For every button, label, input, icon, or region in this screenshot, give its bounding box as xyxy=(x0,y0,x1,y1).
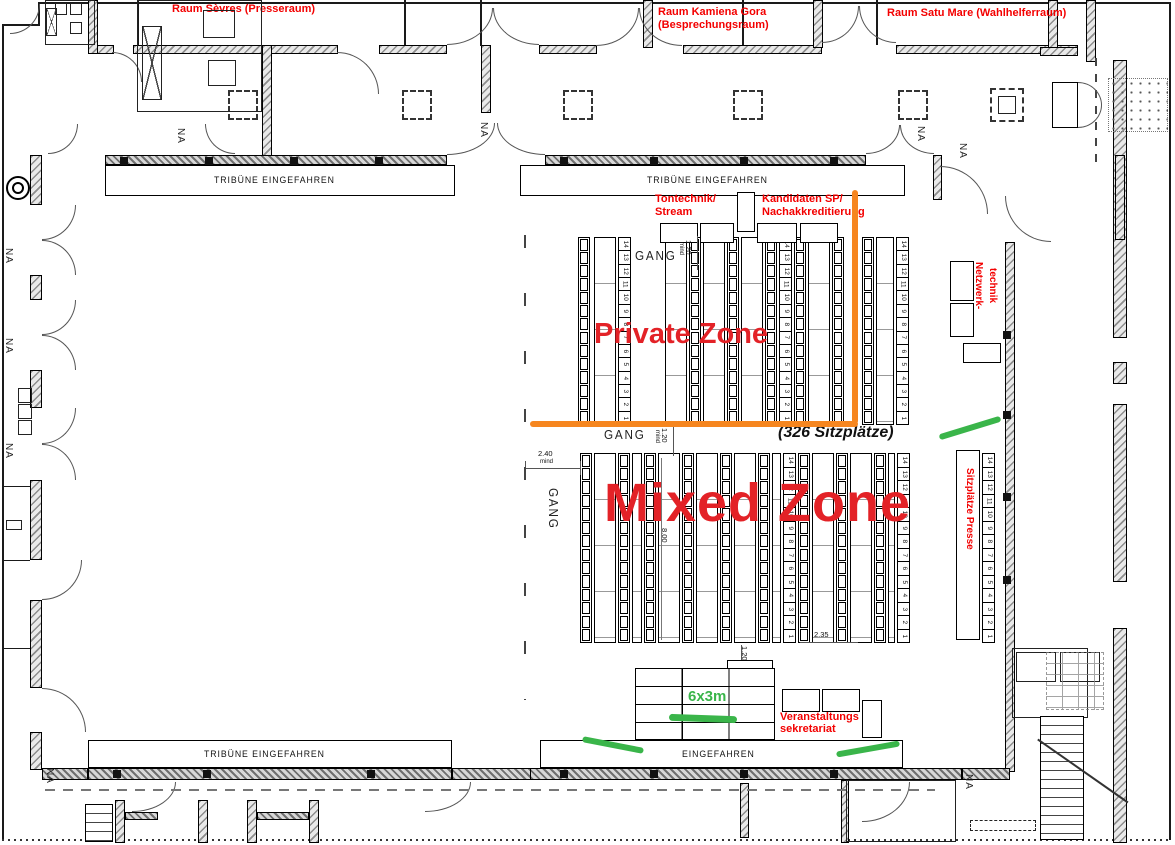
seat xyxy=(620,589,629,601)
seat xyxy=(729,265,738,277)
seat xyxy=(684,589,693,601)
seat-number-text: 1 xyxy=(899,416,906,420)
seat-number-text: 10 xyxy=(985,511,992,518)
seat-number-text: 9 xyxy=(621,309,628,313)
seat xyxy=(684,575,693,587)
door-arc xyxy=(42,688,86,732)
seat-number-text: 3 xyxy=(985,607,992,611)
seat-number-text: 10 xyxy=(899,294,906,301)
na-label: NA xyxy=(44,768,56,784)
table-netzwerk xyxy=(950,303,974,337)
seat-number-text: 3 xyxy=(621,389,628,393)
seat-number: 13 xyxy=(780,250,791,263)
seat xyxy=(684,549,693,561)
seat-number-text: 3 xyxy=(899,389,906,393)
seat-number-text: 2 xyxy=(899,403,906,407)
seat xyxy=(796,278,805,290)
seat xyxy=(767,385,776,397)
tribune-bottom-left: TRIBÜNE EINGEFAHREN xyxy=(88,740,452,768)
seat xyxy=(729,358,738,370)
wall-marker xyxy=(367,770,375,778)
seat-column xyxy=(578,237,590,425)
seat xyxy=(580,265,589,277)
fixture xyxy=(70,3,82,15)
seat-number-text: 6 xyxy=(985,566,992,570)
dim-tick xyxy=(697,236,698,270)
seat-number: 1 xyxy=(898,629,909,643)
wall-segment xyxy=(115,800,125,843)
rail-segment xyxy=(88,768,452,780)
seat xyxy=(729,278,738,290)
seat xyxy=(864,305,873,317)
seat xyxy=(722,549,731,561)
seat xyxy=(646,589,655,601)
seat-number: 1 xyxy=(784,629,795,643)
seat xyxy=(834,358,843,370)
dim-120-stage: 1.20 xyxy=(739,646,748,661)
seat-number-text: 6 xyxy=(782,349,789,353)
door-arc xyxy=(205,124,235,154)
gang-label-mid: GANG xyxy=(604,428,646,443)
seat xyxy=(722,589,731,601)
seat xyxy=(800,535,809,547)
seat xyxy=(582,602,591,614)
seat xyxy=(646,629,655,641)
seat-number: 2 xyxy=(784,615,795,629)
seat xyxy=(582,562,591,574)
seat xyxy=(796,292,805,304)
seat-number-text: 3 xyxy=(782,389,789,393)
na-label: NA xyxy=(963,774,975,790)
seat-number: 4 xyxy=(784,588,795,602)
seat xyxy=(580,292,589,304)
seat xyxy=(864,292,873,304)
stair-flight xyxy=(1040,716,1084,840)
seat-number-text: 11 xyxy=(621,281,628,288)
seat xyxy=(580,278,589,290)
seat xyxy=(876,629,885,641)
door-arc xyxy=(42,408,76,444)
seat-number-text: 4 xyxy=(786,593,793,597)
table-veranstaltung xyxy=(782,689,820,712)
seat-number: 5 xyxy=(983,575,994,589)
seat-number: 2 xyxy=(983,615,994,629)
seat xyxy=(684,629,693,641)
seat xyxy=(646,602,655,614)
seat xyxy=(767,292,776,304)
wall-segment xyxy=(1113,362,1127,384)
seat xyxy=(838,575,847,587)
seat-number-text: 2 xyxy=(786,620,793,624)
seat xyxy=(864,332,873,344)
door-arc xyxy=(42,335,76,370)
seat xyxy=(800,589,809,601)
seat xyxy=(834,398,843,410)
seat-number-text: 1 xyxy=(782,416,789,420)
door-arc xyxy=(10,4,40,34)
seat-number-text: 4 xyxy=(985,593,992,597)
seat xyxy=(800,629,809,641)
rail-segment xyxy=(545,155,866,165)
wall-marker xyxy=(740,770,748,778)
seat xyxy=(864,371,873,383)
door-arc xyxy=(493,8,539,45)
room-label-satu-mare: Raum Satu Mare (Wahlhelferraum) xyxy=(887,7,1066,20)
door-arc xyxy=(42,240,76,275)
wall-segment xyxy=(481,45,491,113)
seat-number-text: 11 xyxy=(899,281,906,288)
seat-number-text: 8 xyxy=(899,323,906,327)
seat xyxy=(729,252,738,264)
wall-segment xyxy=(30,600,42,688)
seat xyxy=(876,602,885,614)
seat xyxy=(760,629,769,641)
seat xyxy=(767,252,776,264)
seat xyxy=(834,252,843,264)
seat xyxy=(864,318,873,330)
seat xyxy=(582,495,591,507)
seat-number: 1 xyxy=(983,629,994,643)
seat xyxy=(760,562,769,574)
door-arc xyxy=(1005,196,1051,242)
seat xyxy=(582,522,591,534)
seat xyxy=(796,332,805,344)
seat-number: 3 xyxy=(780,384,791,397)
seat-number: 3 xyxy=(619,384,630,397)
seat xyxy=(876,575,885,587)
seat xyxy=(760,455,769,467)
door-arc xyxy=(42,560,82,600)
table-column xyxy=(808,237,830,425)
seat xyxy=(834,345,843,357)
seat-number: 6 xyxy=(780,344,791,357)
seat-number-text: 12 xyxy=(985,484,992,491)
table-kandidaten xyxy=(800,223,838,243)
tribune-label: TRIBÜNE EINGEFAHREN xyxy=(214,175,335,186)
seat xyxy=(767,278,776,290)
seat xyxy=(796,398,805,410)
seat-number: 4 xyxy=(983,588,994,602)
door-arc xyxy=(447,8,493,45)
seat xyxy=(876,549,885,561)
wall-segment xyxy=(1040,47,1078,56)
seat-number-text: 9 xyxy=(782,309,789,313)
podium xyxy=(737,192,755,232)
seat xyxy=(722,455,731,467)
seat xyxy=(582,508,591,520)
seat xyxy=(646,535,655,547)
seat-number: 8 xyxy=(898,534,909,548)
seat xyxy=(684,455,693,467)
seat xyxy=(582,481,591,493)
seat-number: 7 xyxy=(897,331,908,344)
seat xyxy=(760,602,769,614)
seat-number: 7 xyxy=(898,548,909,562)
seat xyxy=(876,455,885,467)
seat xyxy=(800,455,809,467)
table-veranstaltung xyxy=(822,689,860,712)
seat xyxy=(864,398,873,410)
seat-number-text: 4 xyxy=(782,376,789,380)
entrance-door-arc xyxy=(1078,82,1102,105)
seat-number: 8 xyxy=(897,317,908,330)
seat xyxy=(767,358,776,370)
seat-number: 7 xyxy=(983,548,994,562)
seat-number: 7 xyxy=(784,548,795,562)
seat xyxy=(691,305,700,317)
seat-number: 8 xyxy=(784,534,795,548)
seat xyxy=(580,385,589,397)
seat xyxy=(834,265,843,277)
kandidaten-label-2: Nachakkreditierung xyxy=(762,206,865,219)
wall-segment xyxy=(1086,0,1096,62)
entrance-door-leaf xyxy=(1052,82,1078,128)
seat xyxy=(834,278,843,290)
seat xyxy=(864,252,873,264)
seat-number-text: 9 xyxy=(985,526,992,530)
na-label: NA xyxy=(478,122,490,138)
rail-segment xyxy=(452,768,532,780)
seat xyxy=(767,305,776,317)
seat-number-text: 2 xyxy=(900,620,907,624)
seat-number: 12 xyxy=(983,480,994,494)
seat xyxy=(722,616,731,628)
center-dashed-line xyxy=(524,235,526,700)
seat xyxy=(582,468,591,480)
radiator xyxy=(18,404,32,419)
boundary-left xyxy=(2,24,4,840)
seat-number-text: 5 xyxy=(621,363,628,367)
seat xyxy=(838,602,847,614)
seat-number-text: 5 xyxy=(782,363,789,367)
seat-number-text: 1 xyxy=(900,634,907,638)
seat-number-column: 1413121110987654321 xyxy=(982,453,995,643)
rail-segment xyxy=(257,812,309,820)
private-zone-line-vertical xyxy=(852,190,858,424)
wall-marker xyxy=(375,157,383,165)
seat xyxy=(580,252,589,264)
seat xyxy=(580,371,589,383)
dim-tick xyxy=(673,424,674,456)
seat xyxy=(760,616,769,628)
presse-label: Sitzplätze Presse xyxy=(964,468,976,550)
tribune-label: TRIBÜNE EINGEFAHREN xyxy=(647,175,768,186)
seat xyxy=(760,575,769,587)
dim-120-mid: 1.20 xyxy=(659,428,668,443)
door-arc xyxy=(42,444,76,480)
room-label-kamiena-1: Raum Kamiena Gora xyxy=(658,6,766,19)
seat-number-text: 3 xyxy=(900,607,907,611)
seat-number-text: 10 xyxy=(621,294,628,301)
seat xyxy=(620,575,629,587)
seat-number: 12 xyxy=(780,264,791,277)
gang-label-top: GANG xyxy=(635,249,677,264)
column-dashed xyxy=(733,90,763,120)
seat xyxy=(796,371,805,383)
bottom-room xyxy=(846,780,956,842)
seat-number: 10 xyxy=(780,290,791,303)
door-arc xyxy=(48,124,78,154)
seat-number-text: 4 xyxy=(621,376,628,380)
wall-segment xyxy=(30,732,42,770)
seat-number-text: 10 xyxy=(782,294,789,301)
seat-number-text: 12 xyxy=(621,267,628,274)
wall-marker xyxy=(205,157,213,165)
table-column xyxy=(876,237,894,425)
mixed-zone-label: Mixed Zone xyxy=(604,472,911,534)
seat xyxy=(722,535,731,547)
seat-number-text: 5 xyxy=(786,580,793,584)
seat xyxy=(800,549,809,561)
seat xyxy=(760,589,769,601)
seat-number: 12 xyxy=(619,264,630,277)
seat-number: 5 xyxy=(897,357,908,370)
seat xyxy=(864,239,873,251)
wall-segment xyxy=(30,275,42,300)
mini-stair xyxy=(85,804,113,842)
seat xyxy=(691,292,700,304)
tontechnik-label-1: Tontechnik/ xyxy=(655,193,716,206)
seat xyxy=(838,455,847,467)
seat-number: 4 xyxy=(897,371,908,384)
wall-segment xyxy=(247,800,257,843)
entrance-mat xyxy=(1108,78,1168,132)
seat xyxy=(580,398,589,410)
dim-240: 2.40 xyxy=(538,450,553,459)
door-arc xyxy=(940,166,988,214)
seat xyxy=(691,385,700,397)
seat-column xyxy=(862,237,874,425)
dim-mind-top: mind xyxy=(677,242,684,255)
seat xyxy=(767,371,776,383)
column-dashed xyxy=(402,90,432,120)
private-zone-line-horizontal xyxy=(530,421,858,427)
seat-number: 1 xyxy=(897,411,908,424)
seat-number-text: 2 xyxy=(621,403,628,407)
na-label: NA xyxy=(915,126,927,142)
seat xyxy=(620,602,629,614)
seat-number-text: 13 xyxy=(782,254,789,261)
rail-segment xyxy=(125,812,158,820)
seat-number-text: 13 xyxy=(899,254,906,261)
seat xyxy=(800,562,809,574)
seat xyxy=(646,616,655,628)
wall-segment xyxy=(740,783,749,838)
stair-dashed-treads xyxy=(1046,652,1104,710)
wall-marker xyxy=(740,157,748,165)
dim-240-mind: mind xyxy=(540,459,553,466)
seat-number-text: 14 xyxy=(899,241,906,248)
seat xyxy=(684,616,693,628)
seat-number: 6 xyxy=(898,561,909,575)
seat-number: 6 xyxy=(897,344,908,357)
entrance-door-arc xyxy=(1078,105,1102,128)
seat xyxy=(691,371,700,383)
seat-number-text: 2 xyxy=(985,620,992,624)
floor-plan: 1413121110987654321141312111098765432114… xyxy=(0,0,1175,845)
seat xyxy=(729,398,738,410)
seat xyxy=(796,252,805,264)
seat-number-text: 6 xyxy=(899,349,906,353)
wall-marker xyxy=(650,770,658,778)
seat-number-text: 6 xyxy=(900,566,907,570)
seat-number: 8 xyxy=(780,317,791,330)
wall-segment xyxy=(262,45,272,157)
na-label: NA xyxy=(3,338,15,354)
private-zone-label: Private Zone xyxy=(594,318,768,351)
bench xyxy=(970,820,1036,831)
seat xyxy=(729,371,738,383)
seat-number: 5 xyxy=(784,575,795,589)
wall-segment xyxy=(309,800,319,843)
seat xyxy=(684,535,693,547)
door-arc xyxy=(42,300,76,335)
seat-number-text: 5 xyxy=(985,580,992,584)
seat xyxy=(864,278,873,290)
seat xyxy=(834,318,843,330)
seat xyxy=(834,332,843,344)
seat xyxy=(620,616,629,628)
left-room-divider xyxy=(2,648,30,649)
wall-marker xyxy=(203,770,211,778)
dim-120-top: 1.20 xyxy=(683,240,692,255)
seat xyxy=(796,305,805,317)
wall-segment xyxy=(683,45,822,54)
seat-number: 3 xyxy=(784,602,795,616)
seat xyxy=(876,589,885,601)
seat xyxy=(646,549,655,561)
seat xyxy=(838,535,847,547)
seat xyxy=(800,616,809,628)
bottom-dashed-line xyxy=(45,789,935,791)
seat xyxy=(582,616,591,628)
wall-segment xyxy=(379,45,447,54)
wall-marker xyxy=(560,770,568,778)
seat-number-text: 7 xyxy=(900,553,907,557)
seat-number-text: 7 xyxy=(786,553,793,557)
seat xyxy=(767,398,776,410)
seat-number-column: 1413121110987654321 xyxy=(896,237,909,425)
na-label: NA xyxy=(3,248,15,264)
boundary-bottom-dotted xyxy=(2,839,1170,841)
tribune-top-right: TRIBÜNE EINGEFAHREN xyxy=(520,165,905,196)
dim-mind-mid: mind xyxy=(653,430,660,443)
seat-number-text: 11 xyxy=(985,497,992,504)
door-arc xyxy=(866,125,900,154)
seat-column xyxy=(832,237,844,425)
wall-marker xyxy=(560,157,568,165)
seat-number-text: 1 xyxy=(786,634,793,638)
door-arc xyxy=(497,123,545,155)
seat xyxy=(580,239,589,251)
seat xyxy=(620,535,629,547)
seat-number: 2 xyxy=(780,397,791,410)
fixture-x xyxy=(142,26,162,100)
seat-number: 9 xyxy=(897,304,908,317)
seat-number: 11 xyxy=(619,277,630,290)
door-arc xyxy=(425,782,471,812)
seat xyxy=(760,549,769,561)
netzwerk-label-2: technik xyxy=(987,268,999,303)
tribune-label: TRIBÜNE EINGEFAHREN xyxy=(204,749,325,760)
seat-number: 14 xyxy=(784,454,795,467)
fixture xyxy=(203,10,235,38)
seat xyxy=(796,318,805,330)
wall-marker xyxy=(1003,411,1011,419)
seat xyxy=(620,549,629,561)
radiator xyxy=(18,388,32,403)
seat xyxy=(796,385,805,397)
